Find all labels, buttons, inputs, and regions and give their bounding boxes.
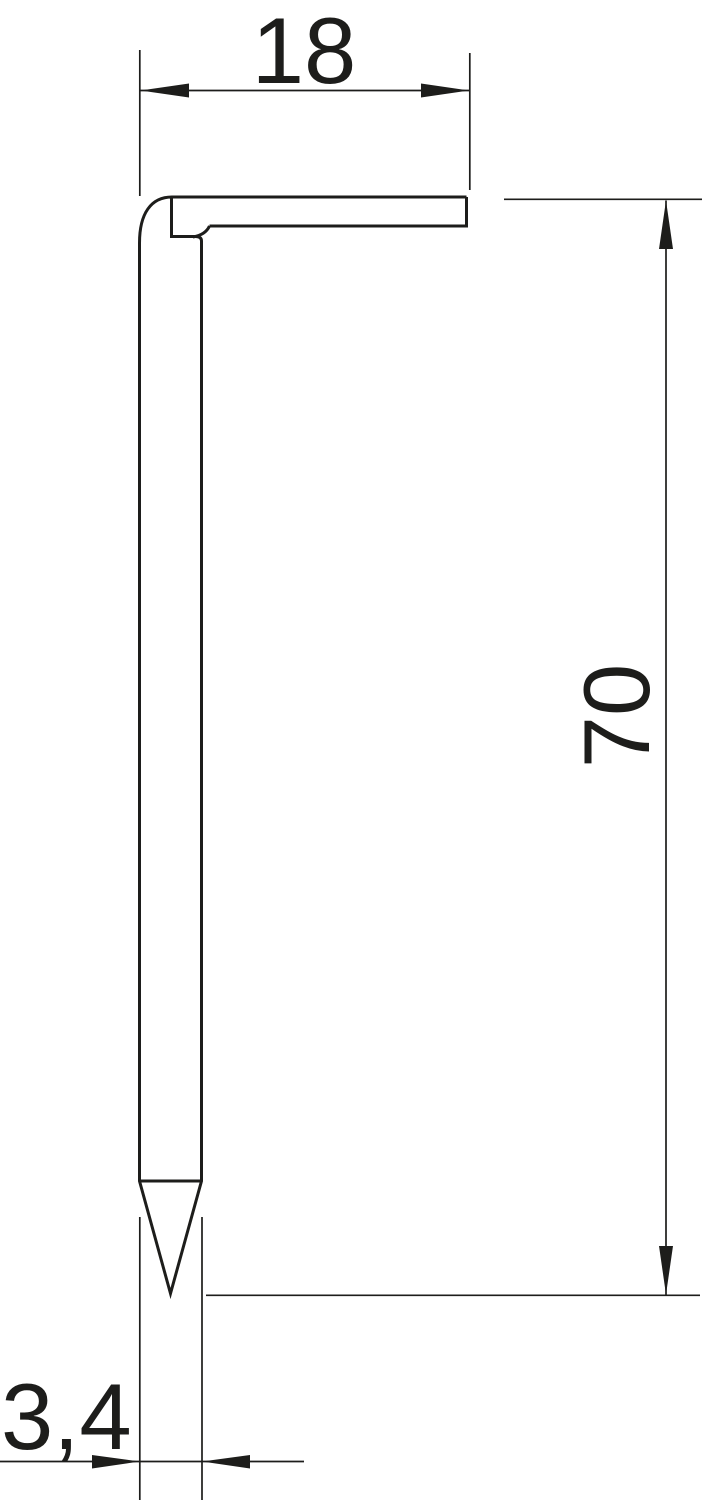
nail-bend-fold-arc: [193, 226, 210, 237]
arrowhead-34-right: [202, 1455, 250, 1469]
nail-body-contour: [140, 197, 467, 1294]
arrowhead-18-right: [421, 84, 469, 98]
arrowhead-70-bottom: [659, 1246, 673, 1295]
nail-head-underside: [210, 197, 467, 226]
dimension-lines-group: [0, 50, 702, 1500]
dimension-label-length: 70: [564, 664, 669, 769]
dimension-label-diameter: 3,4: [1, 1364, 132, 1469]
nail-outline-group: [140, 197, 467, 1294]
dimension-label-head-width: 18: [252, 0, 357, 103]
arrowhead-18-left: [141, 84, 190, 98]
arrowhead-70-top: [659, 201, 673, 250]
technical-drawing-page: 18 70 3,4: [0, 0, 704, 1500]
hook-nail-dimension-drawing: 18 70 3,4: [0, 0, 704, 1500]
